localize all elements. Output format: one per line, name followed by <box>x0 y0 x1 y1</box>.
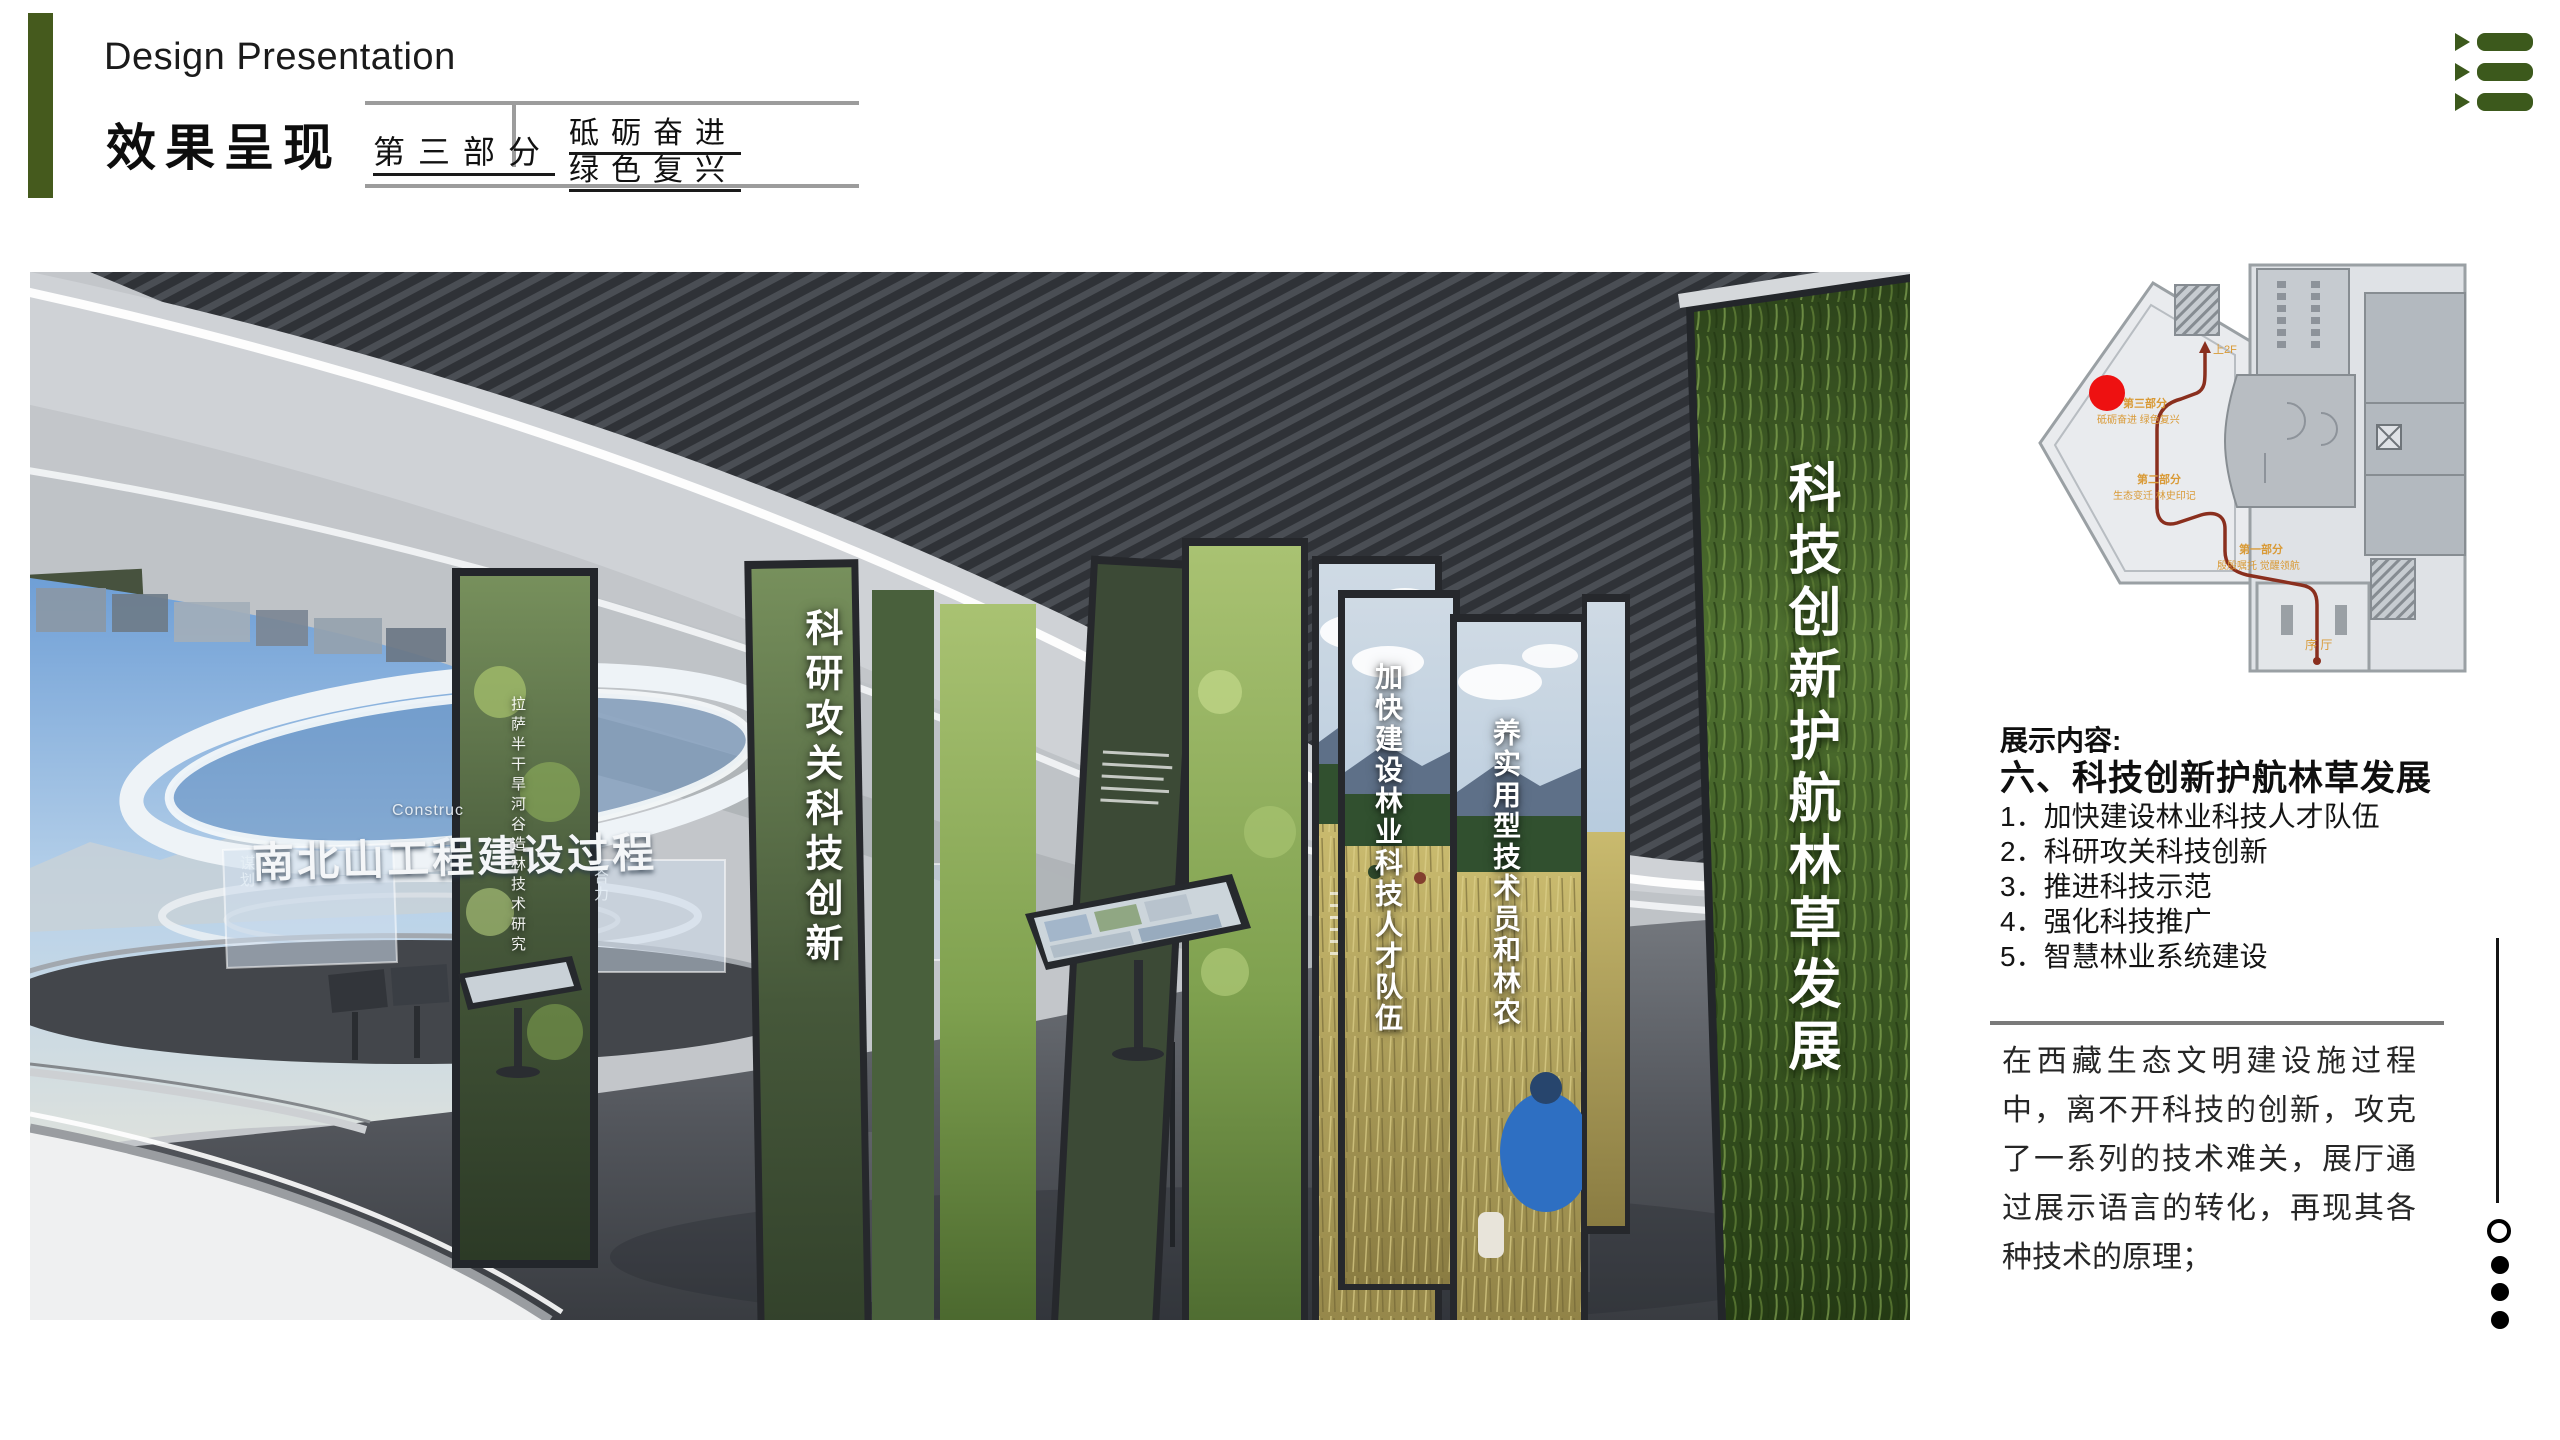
plan-label-part2: 第二部分 <box>2137 472 2181 486</box>
list-item: 5．智慧林业系统建设 <box>2000 939 2445 974</box>
plan-stairs <box>2371 559 2415 619</box>
plan-meeting-room <box>2257 269 2349 375</box>
list-item: 2．科研攻关科技创新 <box>2000 834 2445 869</box>
plan-label-part2-sub: 生态变迁 林史印记 <box>2113 489 2196 502</box>
list-menu-icon[interactable] <box>2455 33 2533 117</box>
page-indicator-dot[interactable] <box>2491 1311 2509 1329</box>
slogan-line-2: 绿色复兴 <box>569 145 741 192</box>
page-indicator-current[interactable] <box>2487 1219 2511 1243</box>
location-marker <box>2089 375 2125 411</box>
panel-text-jiakuai: 加快建设林业科技人才队伍 <box>1367 662 1407 1034</box>
triangle-bullet-icon <box>2455 63 2470 81</box>
decorative-vertical-line <box>2496 938 2499 1203</box>
part-label: 第三部分 <box>373 127 555 176</box>
screen-3d-title-en: Construc <box>392 802 464 820</box>
menu-bar <box>2477 33 2533 51</box>
menu-bar <box>2477 93 2533 111</box>
list-item: 1．加快建设林业科技人才队伍 <box>2000 799 2445 834</box>
plan-label-part1-sub: 殷殷嘱托 觉醒领航 <box>2217 559 2300 572</box>
plan-label-part3: 第三部分 <box>2123 396 2167 410</box>
plan-lobby <box>2257 583 2369 671</box>
section-title: 六、科技创新护航林草发展 <box>2000 750 2432 801</box>
plan-label-lobby: 序 厅 <box>2305 637 2332 652</box>
panel-text-yang: 养实用型技术员和林农 <box>1485 718 1525 1028</box>
plan-label-part1: 第一部分 <box>2239 542 2283 556</box>
section-divider <box>1990 1021 2444 1025</box>
part-title-table: 第三部分 砥砺奋进 绿色复兴 <box>365 101 859 188</box>
plan-label-part3-sub: 砥砺奋进 绿色复兴 <box>2097 413 2180 426</box>
plan-auditorium <box>2225 375 2355 507</box>
render-scene <box>30 272 1910 1320</box>
page-title-en: Design Presentation <box>104 36 456 79</box>
page-indicator-dot[interactable] <box>2491 1283 2509 1301</box>
slide: Design Presentation 效果呈现 第三部分 砥砺奋进 绿色复兴 <box>0 0 2560 1440</box>
glass-board-caption-1: 谋划 <box>236 855 257 889</box>
triangle-bullet-icon <box>2455 33 2470 51</box>
panel-text-lasa: 拉萨半干旱河谷造林技术研究 <box>507 696 528 956</box>
grass-wall-title: 科技创新护航林草发展 <box>1772 460 1848 1080</box>
panel-field-group <box>1312 556 1630 1320</box>
content-list: 1．加快建设林业科技人才队伍 2．科研攻关科技创新 3．推进科技示范 4．强化科… <box>2000 799 2445 974</box>
page-indicator-dot[interactable] <box>2491 1256 2509 1274</box>
list-item: 3．推进科技示范 <box>2000 869 2445 904</box>
triangle-bullet-icon <box>2455 93 2470 111</box>
description-paragraph: 在西藏生态文明建设施过程中，离不开科技的创新，攻克了一系列的技术难关，展厅通过展… <box>2002 1037 2416 1282</box>
panel-text-keyan: 科研攻关科技创新 <box>793 608 848 968</box>
glass-board-caption-2: 合力 <box>590 869 611 903</box>
menu-bar <box>2477 63 2533 81</box>
page-title-zh: 效果呈现 <box>106 108 342 180</box>
plan-label-up2f: 上2F <box>2213 343 2237 356</box>
accent-bar <box>28 13 53 198</box>
worker-figure <box>1500 1092 1592 1212</box>
floor-plan: 上2F 第三部分 砥砺奋进 绿色复兴 第二部分 生态变迁 林史印记 第一部分 殷… <box>2025 253 2481 699</box>
exhibition-render: 南北山工程建设过程 Construc 拉萨半干旱河谷造林技术研究 科研攻关科技创… <box>30 272 1910 1320</box>
list-item: 4．强化科技推广 <box>2000 904 2445 939</box>
plan-stairs <box>2175 285 2219 335</box>
